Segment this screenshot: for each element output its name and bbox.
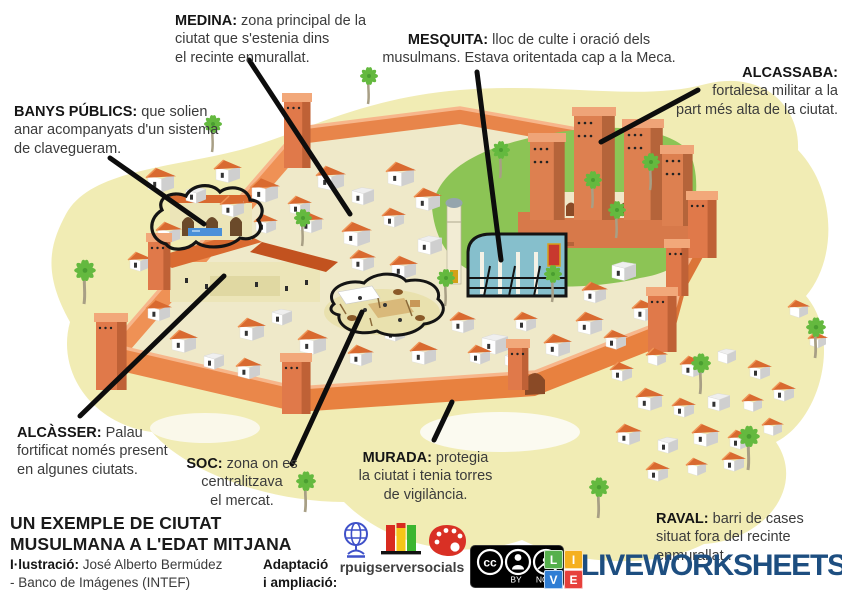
rpuigserversocials-logo[interactable] bbox=[336, 519, 468, 561]
label-raval-term: RAVAL: bbox=[656, 511, 709, 527]
label-banys-term: BANYS PÚBLICS: bbox=[14, 104, 137, 120]
label-alcassaba-term: ALCASSABA: bbox=[742, 65, 838, 81]
label-alcassaba-desc: fortalesa militar a la part més alta de … bbox=[676, 83, 838, 117]
label-murada-term: MURADA: bbox=[363, 450, 432, 466]
title-line1: UN EXEMPLE DE CIUTAT bbox=[10, 513, 292, 534]
label-mesquita: MESQUITA: lloc de culte i oració dels mu… bbox=[369, 31, 689, 68]
label-banys: BANYS PÚBLICS: que solien anar acompanya… bbox=[14, 103, 229, 158]
illustration-credit-label: I·lustració: bbox=[10, 557, 79, 572]
label-alcasser: ALCÀSSER: Palau fortificat només present… bbox=[17, 424, 202, 479]
illustration-credit: I·lustració: José Alberto Bermúdez bbox=[10, 556, 222, 574]
cc-by-text: BY bbox=[510, 575, 522, 585]
illustration-credit-name: José Alberto Bermúdez bbox=[79, 557, 222, 572]
palette-icon bbox=[426, 520, 468, 560]
label-alcassaba: ALCASSABA: fortalesa militar a la part m… bbox=[640, 64, 838, 119]
tile-i: I bbox=[564, 550, 583, 569]
label-soc-term: SOC: bbox=[186, 456, 222, 472]
books-icon bbox=[380, 520, 422, 560]
globe-icon bbox=[336, 520, 376, 560]
label-medina: MEDINA: zona principal de la ciutat que … bbox=[175, 12, 390, 67]
worksheet-page: MEDINA: zona principal de la ciutat que … bbox=[0, 0, 842, 595]
title-line2: MUSULMANA A L'EDAT MITJANA bbox=[10, 534, 292, 555]
adaptation-credit: Adaptació i ampliació: bbox=[263, 556, 337, 591]
label-mesquita-term: MESQUITA: bbox=[408, 32, 488, 48]
tile-l: L bbox=[544, 550, 563, 569]
liveworksheets-tiles: L I V E bbox=[544, 550, 583, 589]
illustration-credit-line2: - Banco de Imágenes (INTEF) bbox=[10, 574, 190, 592]
label-murada: MURADA: protegia la ciutat i tenia torre… bbox=[338, 449, 513, 504]
tile-e: E bbox=[564, 570, 583, 589]
label-medina-term: MEDINA: bbox=[175, 13, 237, 29]
svg-text:cc: cc bbox=[483, 556, 497, 570]
label-soc: SOC: zona on es centralitzava el mercat. bbox=[182, 455, 302, 510]
liveworksheets-wordmark[interactable]: LIVEWORKSHEETS bbox=[581, 549, 842, 583]
page-title: UN EXEMPLE DE CIUTAT MUSULMANA A L'EDAT … bbox=[10, 513, 292, 555]
rpuigserversocials-caption: rpuigserversocials bbox=[333, 559, 471, 575]
tile-v: V bbox=[544, 570, 563, 589]
label-alcasser-term: ALCÀSSER: bbox=[17, 425, 102, 441]
